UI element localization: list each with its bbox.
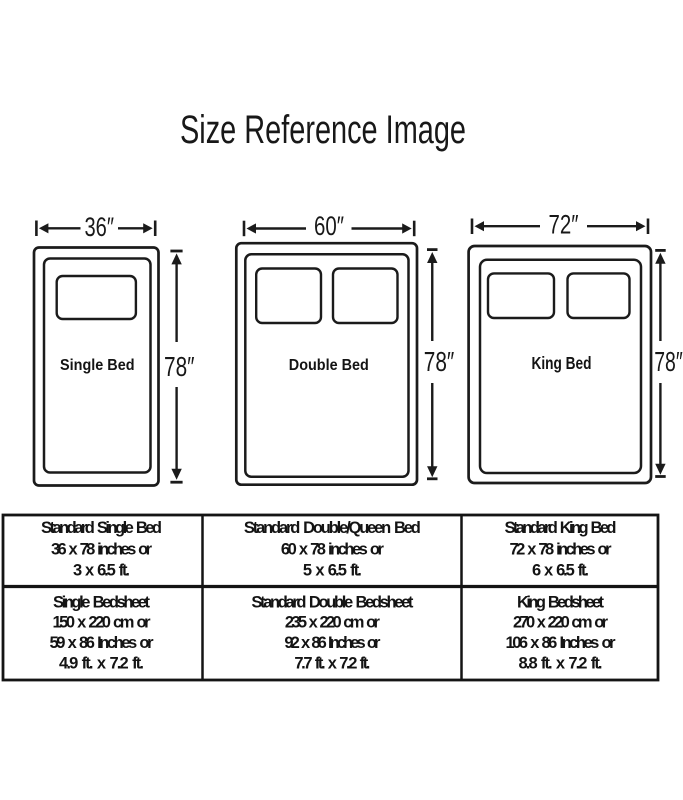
svg-text:Standard Double Bedsheet: Standard Double Bedsheet — [251, 594, 414, 612]
svg-text:Double Bed: Double Bed — [289, 357, 369, 374]
svg-text:150 x 220 cm or: 150 x 220 cm or — [53, 614, 152, 632]
svg-text:72 x 78 inches or: 72 x 78 inches or — [510, 541, 613, 559]
svg-text:King Bedsheet: King Bedsheet — [517, 594, 605, 612]
svg-text:Standard King Bed: Standard King Bed — [505, 519, 617, 537]
svg-text:3 x 6.5 ft.: 3 x 6.5 ft. — [73, 562, 130, 580]
svg-text:235 x 220 cm or: 235 x 220 cm or — [285, 614, 381, 632]
svg-text:Single Bed: Single Bed — [60, 357, 135, 374]
svg-text:8.8 ft. x 7.2 ft.: 8.8 ft. x 7.2 ft. — [519, 655, 603, 673]
svg-text:78″: 78″ — [654, 346, 683, 377]
svg-text:78″: 78″ — [424, 346, 455, 377]
svg-text:Standard Double/Queen Bed: Standard Double/Queen Bed — [244, 519, 421, 537]
svg-text:36″: 36″ — [84, 212, 114, 242]
svg-text:36 x 78 inches or: 36 x 78 inches or — [51, 541, 153, 559]
svg-text:Standard Single Bed: Standard Single Bed — [41, 519, 162, 537]
svg-text:4.9 ft. x 7.2 ft.: 4.9 ft. x 7.2 ft. — [59, 655, 144, 673]
svg-text:106 x 86 Inches or: 106 x 86 Inches or — [506, 634, 617, 652]
svg-text:78″: 78″ — [164, 351, 195, 382]
svg-text:270 x 220 cm or: 270 x 220 cm or — [513, 614, 609, 632]
svg-text:60 x 78 inches or: 60 x 78 inches or — [281, 541, 385, 559]
svg-text:59 x 86 Inches or: 59 x 86 Inches or — [50, 634, 155, 652]
svg-text:King Bed: King Bed — [532, 353, 592, 373]
svg-text:7.7 ft. x 7.2 ft.: 7.7 ft. x 7.2 ft. — [294, 655, 370, 673]
svg-text:92 x 86 Inches or: 92 x 86 Inches or — [284, 634, 381, 652]
svg-text:60″: 60″ — [314, 211, 344, 241]
svg-text:6 x 6.5 ft.: 6 x 6.5 ft. — [532, 562, 589, 580]
svg-text:Size Reference Image: Size Reference Image — [180, 108, 466, 152]
svg-text:Single Bedsheet: Single Bedsheet — [53, 594, 151, 612]
svg-text:5 x 6.5 ft.: 5 x 6.5 ft. — [303, 562, 362, 580]
svg-text:72″: 72″ — [549, 210, 579, 240]
